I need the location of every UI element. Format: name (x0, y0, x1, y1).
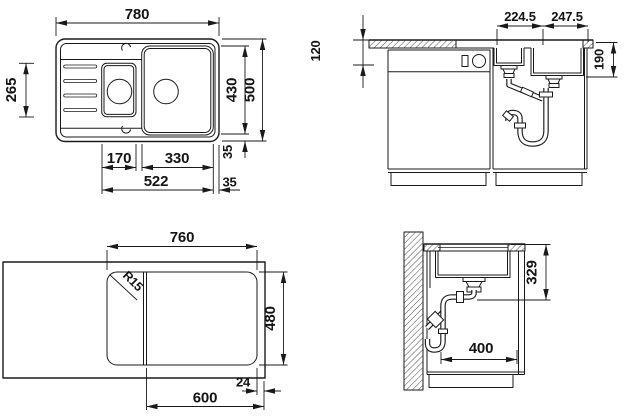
side-plinth (429, 375, 513, 388)
dishwasher-plinth (391, 173, 486, 186)
sink-dimension-drawing: 780 265 430 500 35 170 330 522 35 (0, 0, 625, 419)
dim-247-5-label: 247.5 (551, 9, 583, 24)
sink-cabinet-plinth (496, 173, 582, 186)
dim-35-horizontal-label: 35 (222, 175, 236, 190)
front-section-view: 120 224.5 247.5 190 (308, 9, 618, 186)
cutout-plan-view: R15 760 480 600 24 (3, 229, 288, 410)
sink-rim-inner (61, 44, 216, 138)
dim-120-label: 120 (308, 40, 323, 61)
tap-hole-mark-bottom (122, 126, 131, 133)
sink-outline (56, 39, 219, 142)
dim-430-label: 430 (224, 78, 241, 102)
wall-hatch (404, 232, 423, 390)
main-bowl (142, 46, 214, 135)
dim-500-label: 500 (242, 78, 259, 102)
dim-780-label: 780 (125, 6, 149, 23)
small-bowl-drain-hole (107, 79, 132, 104)
tap-hole-mark-top (122, 43, 131, 50)
dim-330-label: 330 (165, 150, 189, 167)
technical-drawing-sheet: 780 265 430 500 35 170 330 522 35 (0, 0, 625, 419)
dim-329-label: 329 (524, 260, 541, 284)
front-main-bowl-outer (531, 48, 584, 76)
main-bowl-drain-hole (154, 79, 179, 104)
dishwasher-knob-icon (473, 55, 486, 68)
dim-190-label: 190 (592, 49, 607, 70)
side-counter-hatch-front (508, 244, 525, 251)
dim-760-label: 760 (170, 229, 194, 246)
dishwasher-panel-icon (462, 56, 468, 67)
countertop-hatch-left (369, 40, 456, 48)
dim-480-label: 480 (262, 306, 279, 330)
dim-24-label: 24 (236, 375, 251, 390)
dim-170-label: 170 (107, 150, 131, 167)
side-counter-hatch-back (424, 244, 440, 251)
side-bowl-inner (438, 252, 508, 276)
dim-400-label: 400 (469, 340, 493, 357)
side-bowl-outer (436, 252, 511, 278)
top-plan-view: 780 265 430 500 35 170 330 522 35 (3, 6, 267, 194)
dim-522-label: 522 (144, 173, 168, 190)
dim-265-label: 265 (3, 78, 20, 102)
small-bowl-inner (104, 66, 134, 115)
dishwasher-cabinet (388, 50, 490, 186)
front-drain-assembly (501, 66, 562, 145)
front-small-bowl-inner (497, 48, 522, 63)
dim-224-5-label: 224.5 (504, 9, 536, 24)
drainboard-grooves (64, 65, 97, 112)
dim-600-label: 600 (193, 390, 217, 407)
front-main-bowl-inner (534, 48, 582, 73)
dim-35-vertical-label: 35 (220, 145, 235, 159)
side-section-view: 329 400 (404, 232, 551, 390)
